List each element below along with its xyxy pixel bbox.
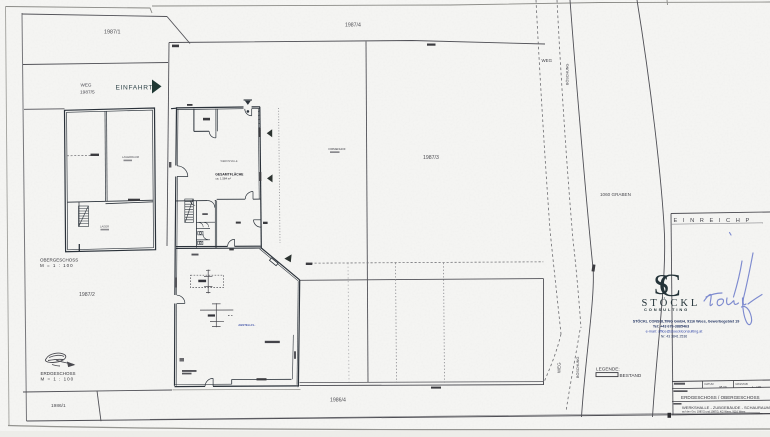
- svg-text:1987/1: 1987/1: [104, 30, 121, 36]
- svg-text:S: S: [654, 269, 670, 301]
- svg-text:1986/1: 1986/1: [51, 403, 66, 409]
- svg-text:1987/3: 1987/3: [423, 155, 439, 161]
- svg-text:auf den Gst. 1987/2 und 1987/3: auf den Gst. 1987/2 und 1987/3, KG Wees,…: [682, 409, 746, 413]
- svg-text:08.09: 08.09: [719, 385, 727, 389]
- svg-text:1987/5: 1987/5: [80, 89, 95, 95]
- svg-text:BÖSCHUNG: BÖSCHUNG: [566, 64, 570, 85]
- svg-text:Nr: 43 3841 2536: Nr: 43 3841 2536: [661, 335, 687, 339]
- svg-text:MASSTAB: MASSTAB: [736, 382, 748, 386]
- svg-text:BÖSCHUNG: BÖSCHUNG: [576, 357, 580, 378]
- svg-text:1987/2: 1987/2: [79, 292, 95, 298]
- svg-text:e-mail: office@stoecklconsulti: e-mail: office@stoecklconsulting.at: [646, 330, 703, 334]
- svg-text:ca. 1.584 m²: ca. 1.584 m²: [216, 177, 232, 181]
- svg-text:WEG: WEG: [81, 82, 92, 87]
- svg-text:ERDGESCHOSS: ERDGESCHOSS: [41, 371, 76, 376]
- svg-text:DATUM: DATUM: [705, 382, 714, 386]
- svg-text:BESTAND: BESTAND: [620, 373, 642, 378]
- svg-text:M = 1 : 100: M = 1 : 100: [40, 263, 74, 268]
- svg-text:LAGERRAUM: LAGERRAUM: [122, 155, 140, 159]
- svg-text:1 : 100: 1 : 100: [752, 385, 762, 389]
- svg-text:WEG: WEG: [557, 362, 562, 373]
- svg-text:WEG: WEG: [542, 58, 553, 63]
- svg-text:STÖCKL CONSULTING GmbH, 9116 W: STÖCKL CONSULTING GmbH, 9116 Wees, Gewer…: [633, 318, 740, 323]
- svg-text:Tel: +43 676-3885463: Tel: +43 676-3885463: [653, 325, 689, 329]
- svg-text:EINFAHRT: EINFAHRT: [116, 85, 154, 92]
- svg-text:M = 1 : 100: M = 1 : 100: [41, 376, 75, 381]
- svg-text:WERKSHALLE - ZUBGEBÄUDE - SCHA: WERKSHALLE - ZUBGEBÄUDE - SCHAURAUM: [682, 405, 770, 410]
- svg-text:1986/4: 1986/4: [330, 398, 346, 404]
- svg-text:LEGENDE:: LEGENDE:: [596, 367, 620, 372]
- svg-text:1987/4: 1987/4: [345, 23, 361, 29]
- svg-text:WERKSHALLE: WERKSHALLE: [221, 160, 238, 163]
- svg-text:OBERGESCHOSS: OBERGESCHOSS: [40, 258, 78, 263]
- svg-text:ABSTELLFL.: ABSTELLFL.: [238, 323, 255, 327]
- svg-text:ERDGESCHOSS / OBERGESCHOSS: ERDGESCHOSS / OBERGESCHOSS: [681, 395, 760, 400]
- svg-text:1060 GRABEN: 1060 GRABEN: [600, 192, 631, 197]
- svg-text:FIRMENHOF: FIRMENHOF: [329, 147, 346, 151]
- svg-text:CONSULTING: CONSULTING: [644, 307, 689, 312]
- svg-text:LAGER: LAGER: [100, 225, 109, 229]
